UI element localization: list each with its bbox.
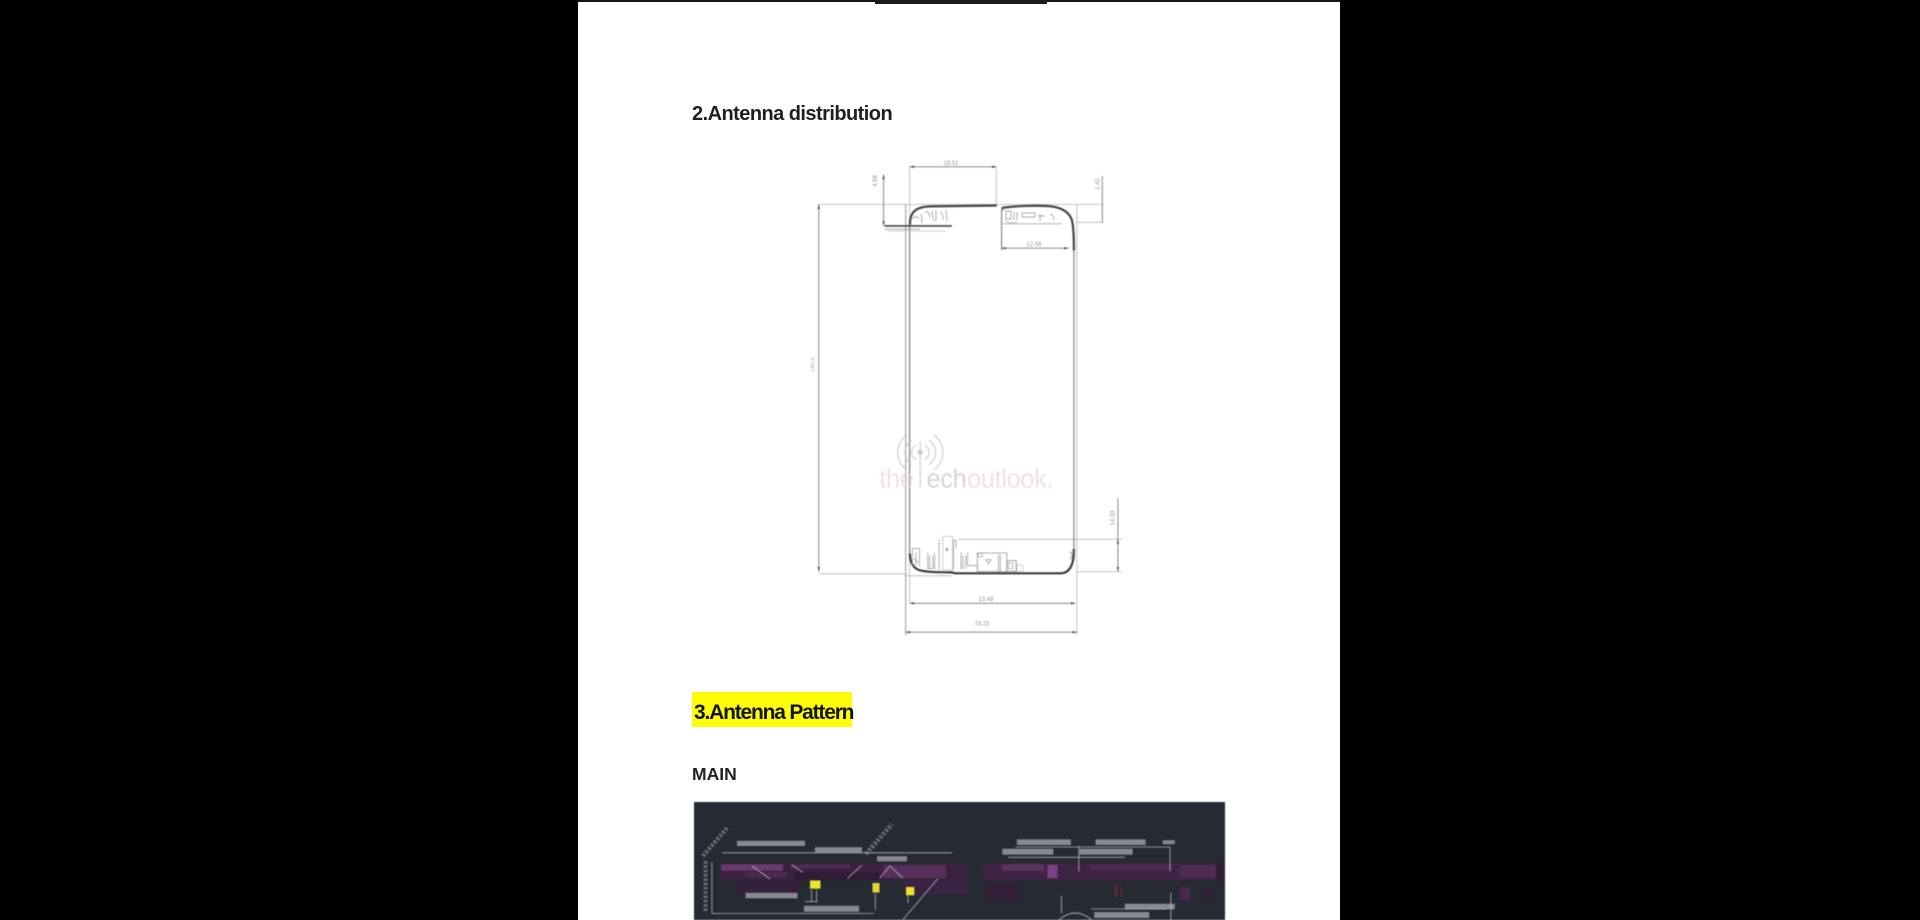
svg-text:1.42: 1.42 xyxy=(1096,178,1102,190)
svg-text:4.68: 4.68 xyxy=(873,175,879,187)
svg-text:18.52: 18.52 xyxy=(943,161,959,167)
svg-text:13.48: 13.48 xyxy=(978,597,994,603)
svg-text:14.33: 14.33 xyxy=(1110,510,1116,526)
svg-text:12.56: 12.56 xyxy=(1026,242,1042,248)
svg-text:ech: ech xyxy=(927,466,967,494)
svg-text:outlook.: outlook. xyxy=(967,466,1053,494)
svg-text:146.5: 146.5 xyxy=(811,357,817,373)
svg-text:the: the xyxy=(879,466,913,494)
svg-text:78.23: 78.23 xyxy=(974,621,990,627)
